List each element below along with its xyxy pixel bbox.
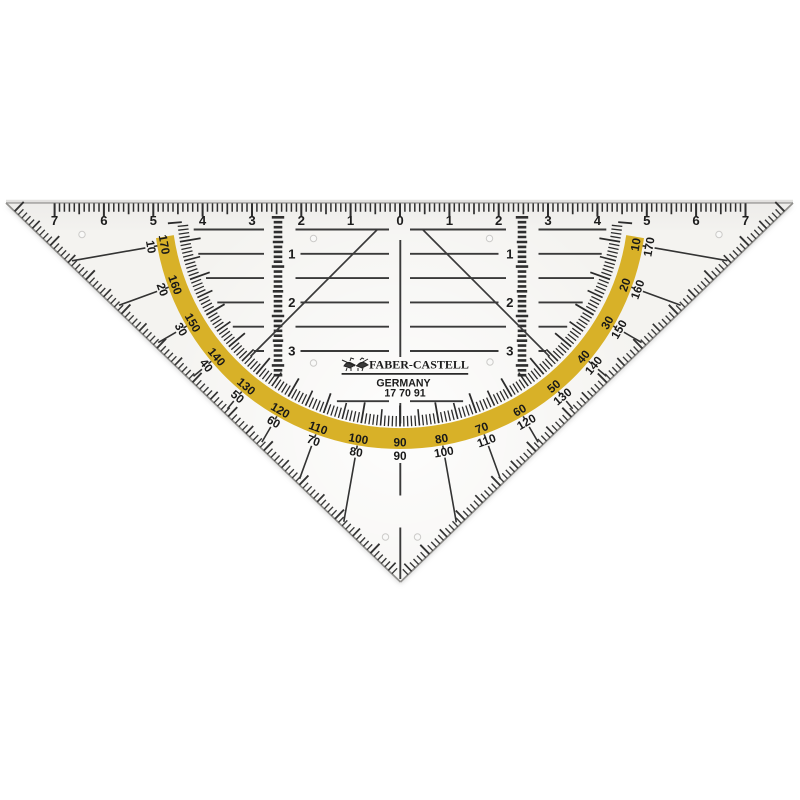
svg-text:4: 4 bbox=[594, 213, 602, 228]
svg-text:3: 3 bbox=[506, 343, 513, 358]
svg-text:3: 3 bbox=[248, 213, 255, 228]
svg-text:1: 1 bbox=[506, 246, 513, 261]
svg-text:90: 90 bbox=[393, 435, 407, 449]
svg-text:6: 6 bbox=[100, 213, 107, 228]
svg-text:7: 7 bbox=[742, 213, 749, 228]
svg-text:90: 90 bbox=[393, 449, 407, 463]
svg-text:0: 0 bbox=[396, 213, 403, 228]
svg-text:2: 2 bbox=[506, 295, 513, 310]
svg-text:1: 1 bbox=[288, 246, 295, 261]
svg-text:1: 1 bbox=[446, 213, 453, 228]
svg-text:2: 2 bbox=[288, 295, 295, 310]
svg-text:5: 5 bbox=[150, 213, 157, 228]
svg-text:17 70 91: 17 70 91 bbox=[384, 388, 425, 400]
svg-text:4: 4 bbox=[199, 213, 207, 228]
svg-text:5: 5 bbox=[643, 213, 650, 228]
svg-text:FABER-CASTELL: FABER-CASTELL bbox=[369, 358, 469, 372]
svg-text:3: 3 bbox=[544, 213, 551, 228]
svg-text:2: 2 bbox=[495, 213, 502, 228]
svg-text:2: 2 bbox=[298, 213, 305, 228]
svg-text:1: 1 bbox=[347, 213, 354, 228]
svg-text:3: 3 bbox=[288, 343, 295, 358]
svg-text:6: 6 bbox=[692, 213, 699, 228]
svg-text:7: 7 bbox=[51, 213, 58, 228]
